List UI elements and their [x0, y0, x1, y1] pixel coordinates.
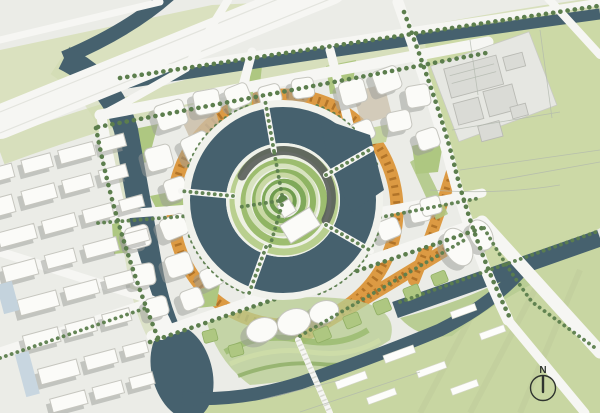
building: [404, 83, 431, 109]
compass-north-label: N: [539, 365, 546, 376]
masterplan-rendering: N: [0, 0, 600, 413]
building: [291, 77, 316, 100]
masterplan-canvas: N: [0, 0, 600, 413]
building: [192, 88, 222, 116]
building: [385, 109, 413, 134]
